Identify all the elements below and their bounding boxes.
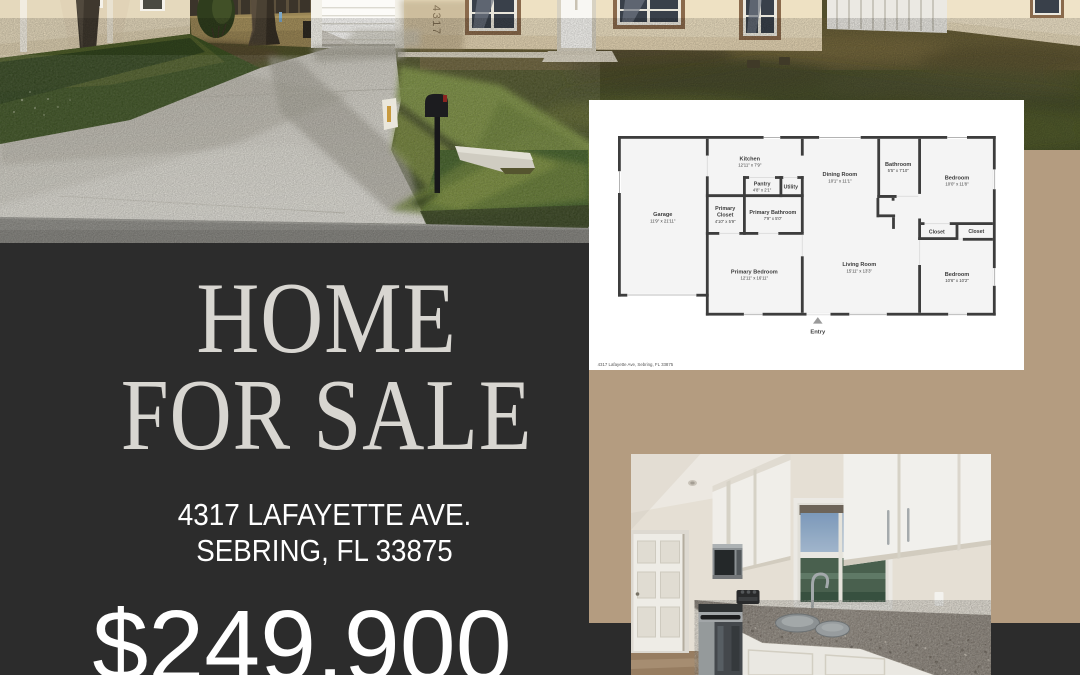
svg-text:Dining Room: Dining Room	[822, 172, 857, 178]
svg-text:Kitchen: Kitchen	[739, 157, 760, 163]
svg-text:15'11" x 13'3": 15'11" x 13'3"	[846, 269, 872, 274]
svg-text:Primary Bedroom: Primary Bedroom	[731, 270, 778, 276]
svg-text:Closet: Closet	[968, 229, 984, 235]
svg-text:Bedroom: Bedroom	[944, 176, 969, 182]
svg-text:7'9" x 5'0": 7'9" x 5'0"	[763, 216, 782, 221]
svg-text:10'0" x 11'8": 10'0" x 11'8"	[945, 182, 969, 187]
svg-text:Garage: Garage	[653, 212, 672, 218]
svg-text:Living Room: Living Room	[842, 262, 876, 268]
svg-text:Primary: Primary	[715, 206, 735, 212]
svg-text:10'6" x 10'2": 10'6" x 10'2"	[945, 278, 969, 283]
svg-text:4'10" x 5'9": 4'10" x 5'9"	[715, 219, 736, 224]
svg-text:12'11" x 16'11": 12'11" x 16'11"	[740, 276, 768, 281]
svg-text:Entry: Entry	[810, 330, 826, 336]
svg-text:Utility: Utility	[783, 185, 798, 191]
svg-text:11'9" x 21'11": 11'9" x 21'11"	[650, 219, 676, 224]
svg-text:Closet: Closet	[929, 230, 945, 236]
svg-text:5'5" x 7'10": 5'5" x 7'10"	[887, 168, 909, 173]
svg-text:12'11" x 7'9": 12'11" x 7'9"	[738, 163, 762, 168]
svg-text:10'1" x 11'1": 10'1" x 11'1"	[828, 179, 852, 184]
svg-text:Bathroom: Bathroom	[885, 162, 911, 168]
svg-text:Closet: Closet	[717, 213, 734, 219]
svg-text:4'8" x 2'1": 4'8" x 2'1"	[753, 188, 772, 193]
